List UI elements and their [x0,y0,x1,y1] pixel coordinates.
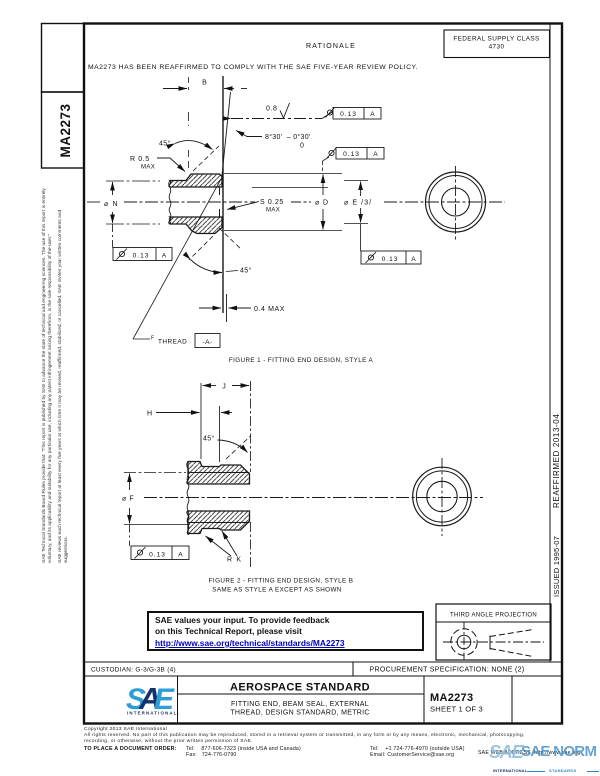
svg-text:R K: R K [227,557,242,564]
svg-text:THREAD: THREAD [158,339,187,346]
svg-text:MA2273: MA2273 [430,692,473,704]
svg-text:0.13: 0.13 [340,111,357,118]
svg-text:45°: 45° [240,267,252,275]
svg-text:0.8: 0.8 [266,106,278,113]
svg-text:A: A [370,111,375,118]
svg-text:4730: 4730 [489,44,505,51]
svg-text:A: A [162,253,167,260]
svg-text:FIGURE 2 - FITTING END DESIGN,: FIGURE 2 - FITTING END DESIGN, STYLE B [209,578,354,585]
svg-text:0.4 MAX: 0.4 MAX [254,306,285,313]
svg-text:S 0.25: S 0.25 [260,199,284,206]
svg-text:SAME AS STYLE A EXCEPT AS SHOW: SAME AS STYLE A EXCEPT AS SHOWN [212,587,342,594]
svg-text:RATIONALE: RATIONALE [306,43,356,50]
svg-text:0.13: 0.13 [133,253,150,260]
svg-text:F: F [151,336,154,342]
svg-text:0.13: 0.13 [149,552,166,559]
svg-text:CUSTODIAN: G-3/G-3B (4): CUSTODIAN: G-3/G-3B (4) [91,667,176,674]
svg-text:R 0.5: R 0.5 [130,156,150,163]
svg-text:0: 0 [300,143,304,150]
svg-text:⌀ D: ⌀ D [315,200,329,207]
svg-text:J: J [222,384,226,391]
svg-text:0.13: 0.13 [343,151,360,158]
svg-text:SHEET 1 OF 3: SHEET 1 OF 3 [430,705,483,714]
svg-text:-A-: -A- [203,339,213,346]
svg-text:A: A [411,256,416,263]
svg-text:A: A [373,151,378,158]
svg-text:45°: 45° [203,435,215,443]
svg-text:ISSUED 1995-07: ISSUED 1995-07 [552,536,561,597]
svg-text:⌀ E /3/: ⌀ E /3/ [344,200,372,207]
svg-text:B: B [202,80,207,87]
svg-text:MA2273: MA2273 [58,103,73,157]
svg-text:⌀ F: ⌀ F [122,496,134,503]
svg-text:INTERNATIONAL.: INTERNATIONAL. [127,711,180,716]
svg-text:AEROSPACE STANDARD: AEROSPACE STANDARD [230,682,370,694]
svg-text:FIGURE 1 - FITTING END DESIGN,: FIGURE 1 - FITTING END DESIGN, STYLE A [229,357,374,364]
svg-text:THIRD ANGLE PROJECTION: THIRD ANGLE PROJECTION [450,613,537,619]
svg-text:THREAD, DESIGN STANDARD, METRI: THREAD, DESIGN STANDARD, METRIC [230,710,369,717]
svg-text:MA2273 HAS BEEN REAFFIRMED TO: MA2273 HAS BEEN REAFFIRMED TO COMPLY WIT… [88,64,418,71]
svg-text:45°: 45° [159,140,171,148]
svg-text:PROCUREMENT SPECIFICATION: NON: PROCUREMENT SPECIFICATION: NONE (2) [370,667,525,674]
svg-text:REAFFIRMED 2013-04: REAFFIRMED 2013-04 [552,414,561,508]
svg-text:MAX: MAX [141,165,155,171]
svg-text:FEDERAL SUPPLY CLASS: FEDERAL SUPPLY CLASS [453,36,539,43]
svg-text:A: A [178,552,183,559]
svg-text:8°30' – 0°30': 8°30' – 0°30' [265,133,311,141]
svg-text:H: H [147,411,152,418]
svg-text:FITTING END, BEAM SEAL, EXTERN: FITTING END, BEAM SEAL, EXTERNAL [231,701,369,708]
svg-text:MAX: MAX [266,208,280,214]
svg-text:⌀ N: ⌀ N [104,201,119,208]
svg-text:0.13: 0.13 [382,256,399,263]
